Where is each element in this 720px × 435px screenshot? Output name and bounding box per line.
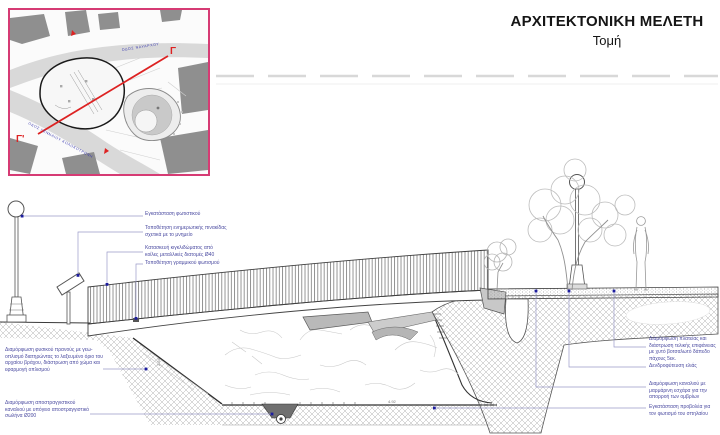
label-cave-floodlight: Εγκατάσταση προβολέα για τον φωτισμό του… [649, 404, 717, 417]
label-drainage-channel: Διαμόρφωση αποστραγγιστικού καναλιού με … [5, 400, 93, 420]
person-figure [633, 217, 648, 290]
label-olive-planting: Δενδροφύτευση ελιάς [649, 363, 717, 370]
leader-railing [107, 252, 143, 284]
slide: ΑΡΧΙΤΕΚΤΟΝΙΚΗ ΜΕΛΕΤΗ Τομή [0, 0, 720, 435]
cave-canopy [303, 312, 436, 340]
label-lamp-installation: Εγκατάσταση φωτιστικού [145, 211, 245, 218]
dimension-slope: 2.54 [156, 357, 161, 366]
olive-tree-small [484, 239, 516, 290]
label-linear-lighting: Τοποθέτηση γραμμικού φωτισμού [145, 260, 245, 267]
label-info-sign: Τοποθέτηση ενημερωτικής πινακίδας σχετικ… [145, 225, 227, 238]
leader-sign [78, 232, 143, 275]
label-railing: Κατασκευή κιγκλιδώματος από κοίλες μεταλ… [145, 245, 227, 258]
plaza-surface [488, 287, 718, 299]
lamp-globe [8, 201, 24, 217]
section-drawing: 2.54 4.92 [0, 0, 720, 435]
label-marble-grate-channel: Διαμόρφωση καναλιού με μαρμάρινη εσχάρα … [649, 381, 717, 401]
label-plaza-surface: Διαμόρφωση πλατείας και διάστρωση τελική… [649, 336, 717, 362]
lamp-post-right [567, 175, 587, 290]
info-sign [57, 273, 84, 324]
lamp-post-left [7, 201, 26, 322]
dimension-floor: 4.92 [388, 399, 397, 404]
label-natural-slope: Διαμόρφωση φυσικού πρανούς με γεω-οπλισμ… [5, 347, 105, 373]
